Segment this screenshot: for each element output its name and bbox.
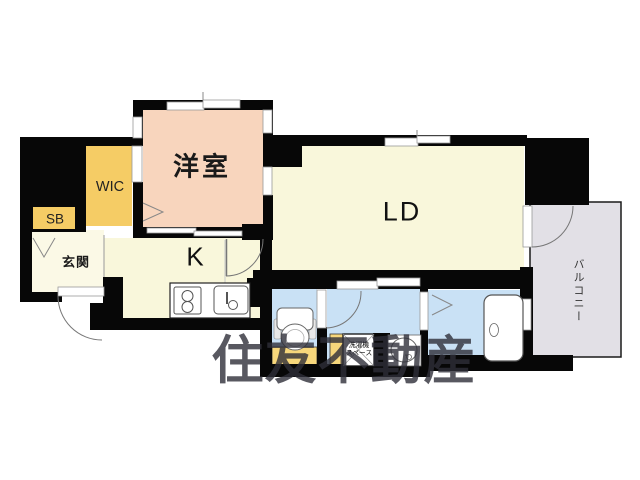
- window: [167, 102, 204, 110]
- window: [417, 136, 450, 143]
- bathtub-icon: [484, 295, 523, 361]
- wall-segment: [520, 267, 533, 292]
- watermark-text: 住友不動産: [211, 319, 476, 394]
- floorplan: 洋室 WIC SB 玄関 K LD バルコニー 洗濯機 スペース 住友不動産: [0, 0, 640, 480]
- floorplan-canvas: [0, 0, 640, 480]
- wall-segment: [75, 195, 86, 232]
- room-label-balcony: バルコニー: [570, 259, 586, 324]
- wall-segment: [20, 292, 62, 302]
- wall-segment: [263, 195, 273, 228]
- room-label-wic: WIC: [96, 179, 124, 195]
- room-label-entrance: 玄関: [62, 252, 90, 271]
- window: [203, 100, 240, 108]
- wall-segment: [133, 182, 143, 228]
- room-label-living-dining: LD: [383, 197, 422, 228]
- door-leaf: [58, 287, 104, 296]
- wall-segment: [85, 137, 135, 146]
- window: [133, 117, 142, 138]
- wall-segment: [90, 303, 123, 330]
- sliding-door: [377, 278, 420, 286]
- wall-segment: [30, 229, 78, 232]
- closet-opening: [132, 146, 142, 182]
- wall-segment: [30, 204, 33, 232]
- room-label-kitchen: K: [186, 242, 203, 273]
- wall-segment: [263, 135, 302, 167]
- wall-segment: [30, 204, 78, 207]
- wall-segment: [247, 278, 272, 307]
- window: [263, 110, 272, 133]
- wall-segment: [525, 138, 589, 205]
- window: [385, 138, 418, 146]
- sliding-door: [337, 281, 378, 289]
- room-label-shoebox: SB: [46, 212, 64, 227]
- sliding-door: [194, 231, 242, 236]
- kitchen-sink-icon: [214, 286, 248, 314]
- window: [263, 167, 272, 195]
- stove-icon: [174, 287, 201, 314]
- wall-segment: [103, 277, 123, 307]
- door-leaf: [523, 206, 532, 247]
- room-label-western: 洋室: [173, 147, 231, 184]
- sliding-door: [147, 228, 196, 233]
- kitchen-counter: [170, 283, 250, 318]
